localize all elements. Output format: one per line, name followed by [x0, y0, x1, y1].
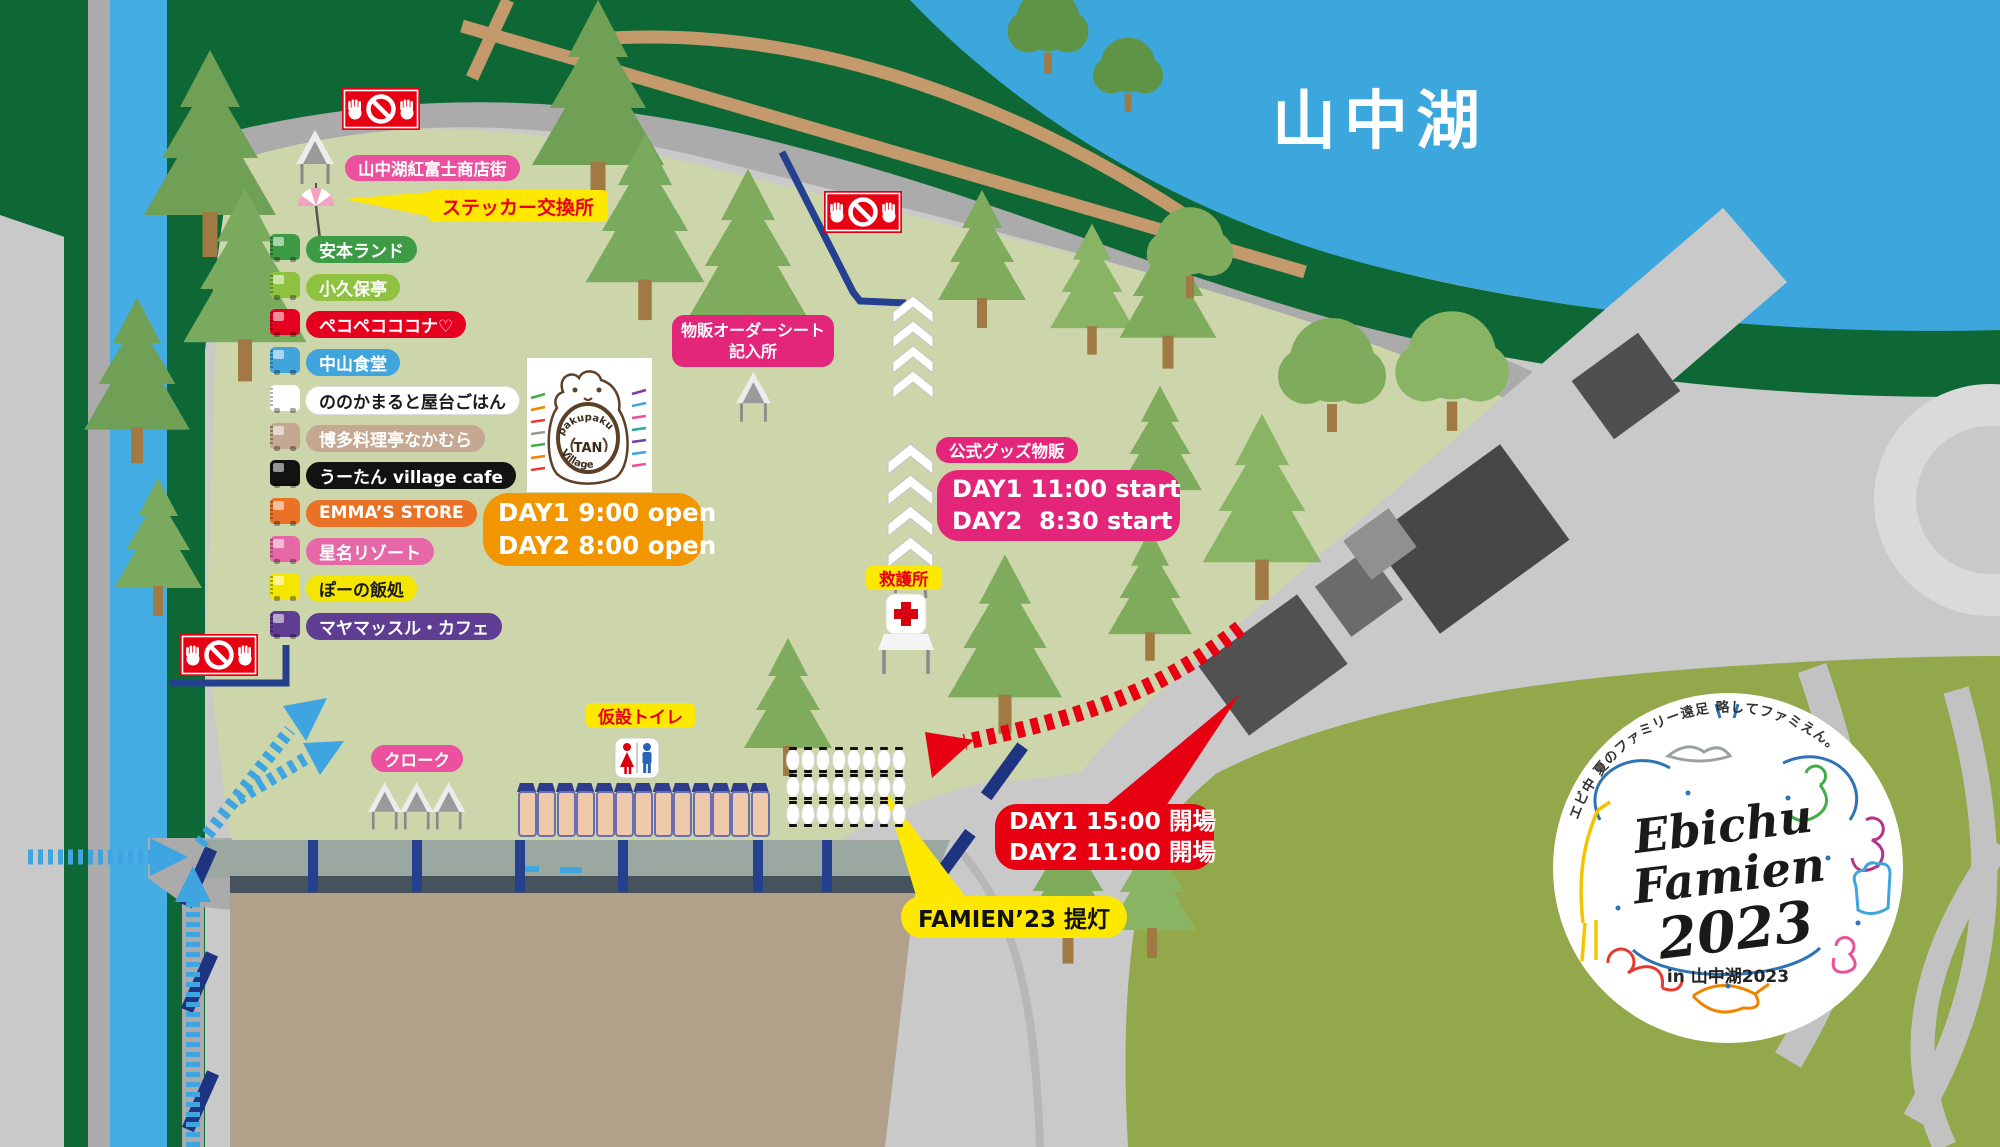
- lantern-icon: [801, 776, 815, 798]
- food-truck-label: 博多料理亭なかむら: [306, 425, 485, 452]
- lantern-icon: [862, 749, 876, 771]
- lantern-icon: [786, 803, 800, 825]
- toilet-stall: [731, 791, 750, 837]
- fence-post: [618, 840, 628, 892]
- label-gate-open: DAY1 9:00 open DAY2 8:00 open: [483, 493, 703, 566]
- lantern-icon: [816, 749, 830, 771]
- truck-w1: [274, 257, 280, 262]
- food-truck-label: ペコペコココナ♡: [306, 311, 466, 338]
- lantern-icon: [832, 749, 846, 771]
- lantern-icon: [892, 749, 906, 771]
- label-temp-toilet: 仮設トイレ: [586, 703, 695, 728]
- truck-w1: [274, 408, 280, 413]
- lantern-icon: [892, 776, 906, 798]
- fence-post: [412, 840, 422, 892]
- truck-w1: [274, 446, 280, 451]
- food-truck-icon: [270, 423, 300, 449]
- label-official-goods: 公式グッズ物販: [936, 437, 1078, 463]
- truck-grill: [270, 539, 273, 558]
- gate-open-day2: DAY2 8:00 open: [498, 530, 716, 562]
- food-truck-label: うーたん village cafe: [306, 462, 516, 489]
- festival-map: pakupaku TAN Village: [0, 0, 2000, 1147]
- lantern-icon: [862, 803, 876, 825]
- truck-w1: [274, 370, 280, 375]
- truck-win: [273, 275, 284, 284]
- lantern-icon: [832, 776, 846, 798]
- toilet-stall: [654, 791, 673, 837]
- truck-w2: [290, 596, 296, 601]
- fence-post: [515, 840, 525, 892]
- label-sticker-exchange: ステッカー交換所: [428, 190, 608, 222]
- map-items-layer: 安本ランド小久保亭ペコペコココナ♡中山食堂ののかまると屋台ごはん博多料理亭なかむ…: [0, 0, 2000, 1147]
- truck-win: [273, 539, 284, 548]
- lake-title: 山中湖: [1272, 70, 1488, 162]
- truck-win: [273, 388, 284, 397]
- label-order-sheet: 物販オーダーシート 記入所: [672, 315, 834, 367]
- truck-win: [273, 312, 284, 321]
- lantern-icon: [847, 776, 861, 798]
- order-sheet-line2: 記入所: [729, 341, 777, 362]
- truck-win: [273, 463, 284, 472]
- entrance-day2: DAY2 11:00 開場: [1009, 837, 1216, 868]
- lantern-icon: [847, 749, 861, 771]
- truck-grill: [270, 350, 273, 369]
- food-truck-label: 中山食堂: [306, 349, 400, 376]
- truck-grill: [270, 426, 273, 445]
- toilet-stall: [693, 791, 712, 837]
- food-truck-icon: [270, 234, 300, 260]
- label-first-aid: 救護所: [866, 566, 942, 590]
- toilet-stall: [673, 791, 692, 837]
- truck-win: [273, 576, 284, 585]
- entrance-day1: DAY1 15:00 開場: [1009, 806, 1216, 837]
- toilet-stall: [518, 791, 537, 837]
- truck-w2: [290, 483, 296, 488]
- lantern-icon: [847, 803, 861, 825]
- food-truck-label: ののかまると屋台ごはん: [306, 387, 519, 414]
- truck-w2: [290, 559, 296, 564]
- food-truck-label: 星名リゾート: [306, 538, 434, 565]
- gate-open-day1: DAY1 9:00 open: [498, 497, 716, 529]
- lantern-icon: [877, 749, 891, 771]
- truck-w1: [274, 596, 280, 601]
- order-sheet-line1: 物販オーダーシート: [681, 320, 825, 341]
- label-lantern: FAMIEN’23 提灯: [901, 896, 1127, 938]
- truck-w1: [274, 295, 280, 300]
- truck-grill: [270, 312, 273, 331]
- truck-win: [273, 350, 284, 359]
- food-truck-label: 安本ランド: [306, 236, 417, 263]
- truck-w2: [290, 408, 296, 413]
- truck-w2: [290, 634, 296, 639]
- goods-hours-day1: DAY1 11:00 start: [952, 474, 1181, 506]
- food-truck-icon: [270, 611, 300, 637]
- truck-grill: [270, 237, 273, 256]
- fence-post: [753, 840, 763, 892]
- truck-w2: [290, 332, 296, 337]
- fence-post: [308, 840, 318, 892]
- label-cloak: クローク: [371, 745, 463, 772]
- lantern-icon: [801, 749, 815, 771]
- truck-grill: [270, 463, 273, 482]
- food-truck-icon: [270, 347, 300, 373]
- truck-grill: [270, 501, 273, 520]
- food-truck-icon: [270, 385, 300, 411]
- truck-win: [273, 426, 284, 435]
- truck-grill: [270, 275, 273, 294]
- truck-grill: [270, 614, 273, 633]
- food-truck-icon: [270, 573, 300, 599]
- lantern-icon: [877, 803, 891, 825]
- toilet-stall: [751, 791, 770, 837]
- truck-w2: [290, 446, 296, 451]
- fence-post: [822, 840, 832, 892]
- food-truck-icon: [270, 460, 300, 486]
- lantern-icon: [786, 749, 800, 771]
- truck-w1: [274, 634, 280, 639]
- toilet-stall: [712, 791, 731, 837]
- truck-w1: [274, 521, 280, 526]
- lantern-icon: [801, 803, 815, 825]
- truck-w1: [274, 332, 280, 337]
- truck-w2: [290, 257, 296, 262]
- truck-win: [273, 614, 284, 623]
- lantern-icon: [877, 776, 891, 798]
- toilet-stall: [537, 791, 556, 837]
- toilet-stall: [557, 791, 576, 837]
- label-shopping-street: 山中湖紅富士商店街: [345, 155, 520, 181]
- lantern-icon: [816, 803, 830, 825]
- food-truck-label: 小久保亭: [306, 274, 400, 301]
- food-truck-label: EMMA’S STORE: [306, 500, 477, 527]
- truck-win: [273, 501, 284, 510]
- food-truck-icon: [270, 272, 300, 298]
- food-truck-label: マヤマッスル・カフェ: [306, 613, 502, 640]
- lantern-icon: [832, 803, 846, 825]
- truck-grill: [270, 576, 273, 595]
- truck-w2: [290, 295, 296, 300]
- truck-w1: [274, 559, 280, 564]
- food-truck-label: ぽーの飯処: [306, 575, 417, 602]
- truck-w2: [290, 521, 296, 526]
- label-goods-hours: DAY1 11:00 start DAY2 8:30 start: [937, 470, 1180, 541]
- food-truck-icon: [270, 536, 300, 562]
- goods-hours-day2: DAY2 8:30 start: [952, 506, 1172, 538]
- food-truck-icon: [270, 309, 300, 335]
- lantern-icon: [816, 776, 830, 798]
- food-truck-icon: [270, 498, 300, 524]
- lantern-icon: [786, 776, 800, 798]
- truck-grill: [270, 388, 273, 407]
- truck-w2: [290, 370, 296, 375]
- toilet-stall: [634, 791, 653, 837]
- lantern-icon: [892, 803, 906, 825]
- toilet-stall: [576, 791, 595, 837]
- label-entrance-hours: DAY1 15:00 開場 DAY2 11:00 開場: [995, 804, 1214, 870]
- truck-win: [273, 237, 284, 246]
- truck-w1: [274, 483, 280, 488]
- lantern-icon: [862, 776, 876, 798]
- toilet-stall: [596, 791, 615, 837]
- toilet-stall: [615, 791, 634, 837]
